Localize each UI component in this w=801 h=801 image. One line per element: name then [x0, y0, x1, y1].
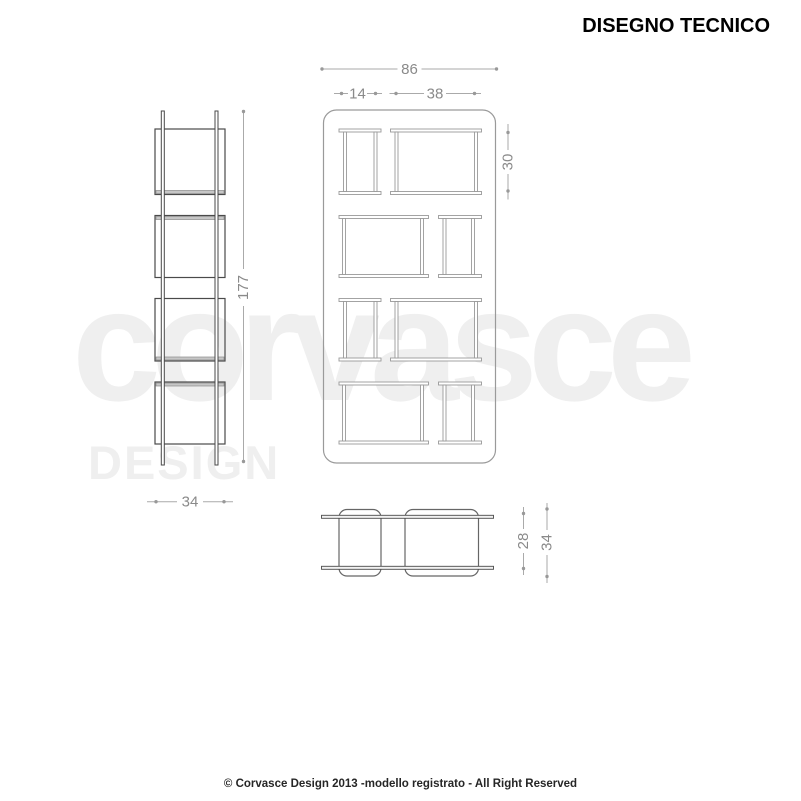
shelf-surface: [339, 441, 429, 444]
wire-rail: [475, 302, 478, 359]
wire-rail: [475, 132, 478, 192]
wire-rail: [421, 219, 424, 275]
side-shelf-surface: [156, 191, 224, 194]
side-shelf-surface: [156, 357, 224, 360]
dim-label-side-depth: 34: [182, 494, 199, 511]
wire-rail: [374, 132, 377, 192]
wire-rail: [343, 385, 346, 441]
wire-rail: [395, 302, 398, 359]
wire-rail: [472, 385, 475, 441]
technical-drawing-page: corvasce DESIGN DISEGNO TECNICO: [0, 0, 801, 801]
wire-rail: [344, 302, 347, 359]
shelf-surface: [339, 382, 429, 385]
wire-rail: [443, 219, 446, 275]
front-view: [324, 110, 496, 463]
plan-rail-back: [322, 566, 494, 569]
dim-label-plan-inner-depth: 28: [515, 533, 532, 550]
side-view: [155, 111, 225, 465]
shelf-surface: [339, 275, 429, 278]
plan-view-dimensions: 28 34: [515, 503, 556, 583]
shelf-surface: [439, 275, 482, 278]
side-shelf-surface: [156, 383, 224, 386]
shelf-surface: [391, 192, 482, 195]
side-rail-left: [161, 111, 164, 465]
shelf-surface: [439, 441, 482, 444]
shelf-surface: [339, 299, 381, 302]
shelf-surface: [391, 358, 482, 361]
dim-label-front-small-bay: 14: [349, 86, 366, 103]
side-rail-right: [215, 111, 218, 465]
side-shelf-surface: [156, 217, 224, 220]
shelf-surface: [439, 382, 482, 385]
dim-label-side-total-height: 177: [235, 275, 252, 300]
shelf-surface: [391, 299, 482, 302]
wire-rail: [343, 219, 346, 275]
shelf-surface: [339, 216, 429, 219]
wire-rail: [344, 132, 347, 192]
wire-rail: [443, 385, 446, 441]
dim-label-front-total-width: 86: [401, 61, 418, 78]
shelf-surface: [339, 358, 381, 361]
wire-rail: [421, 385, 424, 441]
wire-rail: [374, 302, 377, 359]
footer-copyright: © Corvasce Design 2013 -modello registra…: [0, 778, 801, 790]
wire-rail: [472, 219, 475, 275]
dim-label-front-row-height: 30: [500, 154, 517, 171]
shelf-surface: [391, 129, 482, 132]
front-panel-outline: [324, 110, 496, 463]
technical-drawing-canvas: 177 34: [0, 0, 801, 801]
dim-label-plan-outer-depth: 34: [539, 534, 556, 551]
plan-view: [322, 510, 494, 577]
wire-rail: [395, 132, 398, 192]
plan-rail-front: [322, 515, 494, 518]
dim-label-front-large-bay: 38: [427, 86, 444, 103]
